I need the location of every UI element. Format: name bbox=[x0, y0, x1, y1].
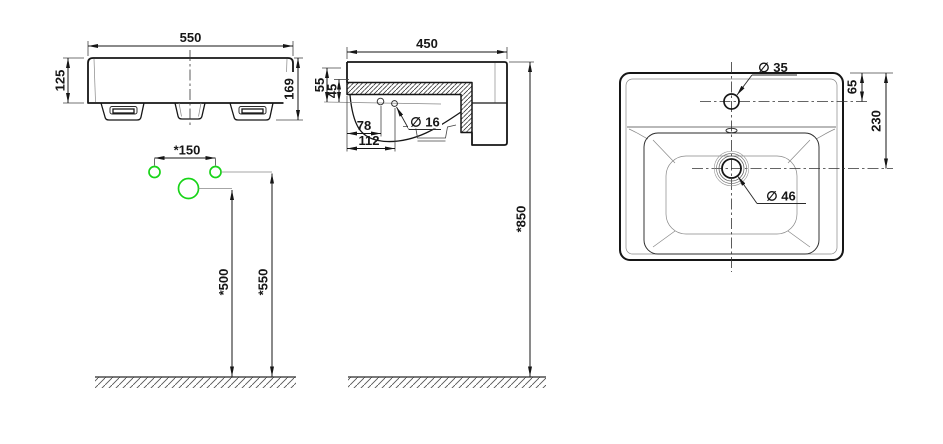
top-tap-hole-offset-label: 65 bbox=[845, 80, 860, 94]
dim-width-550: 550 bbox=[88, 30, 293, 56]
front-body-height-label: 125 bbox=[53, 70, 68, 92]
top-drain-offset-label: 230 bbox=[869, 110, 884, 132]
side-fixing-hole-1 bbox=[377, 98, 384, 105]
side-hole-x2-label: 112 bbox=[359, 133, 380, 148]
dim-rim-height-850: *850 bbox=[509, 62, 534, 377]
front-basin-outline bbox=[88, 58, 293, 103]
front-inner-line-left bbox=[94, 59, 96, 102]
ground-hatch-side bbox=[348, 378, 546, 389]
tap-hole-right-circle bbox=[210, 167, 221, 178]
front-width-label: 550 bbox=[180, 30, 202, 45]
side-depth-label: 450 bbox=[416, 36, 438, 51]
technical-drawing-svg: 550 125 169 *150 *550 *500 bbox=[0, 0, 943, 444]
tap-hole-left-circle bbox=[149, 167, 160, 178]
side-rim-height-label: *850 bbox=[514, 206, 529, 233]
front-foot-right bbox=[230, 103, 273, 120]
tap-holes-height-label: *550 bbox=[256, 269, 271, 296]
tap-hole-spacing-label: *150 bbox=[174, 143, 201, 158]
front-overall-height-label: 169 bbox=[282, 78, 297, 100]
front-foot-left bbox=[101, 103, 144, 120]
front-foot-right-slot-inner bbox=[242, 109, 263, 113]
installation-diagram: *150 *550 *500 bbox=[95, 143, 296, 389]
front-view: 550 125 169 bbox=[53, 30, 304, 128]
dim-45: 45 bbox=[325, 80, 350, 103]
spout-height-label: *500 bbox=[216, 269, 231, 296]
side-fixing-hole-dia-label: ∅ 16 bbox=[410, 115, 439, 130]
top-drain-dia-label: ∅ 46 bbox=[766, 189, 795, 204]
dim-230: 230 bbox=[869, 73, 887, 169]
dim-body-height-125: 125 bbox=[53, 58, 85, 103]
side-hole-x1-label: 78 bbox=[357, 118, 371, 133]
top-tap-hole-dia-label: ∅ 35 bbox=[758, 60, 787, 75]
side-rim-to-hole-label: 45 bbox=[325, 84, 340, 98]
side-view: 450 55 45 78 bbox=[312, 36, 546, 388]
dim-depth-450: 450 bbox=[347, 36, 507, 59]
ground-hatch-front bbox=[95, 378, 296, 389]
spout-hole-circle bbox=[179, 179, 199, 199]
dim-overall-height-169: 169 bbox=[276, 58, 303, 120]
front-foot-left-slot-inner bbox=[113, 109, 134, 113]
top-view: ∅ 35 ∅ 46 65 230 bbox=[620, 60, 893, 272]
technical-drawing-canvas: 550 125 169 *150 *550 *500 bbox=[0, 0, 943, 444]
